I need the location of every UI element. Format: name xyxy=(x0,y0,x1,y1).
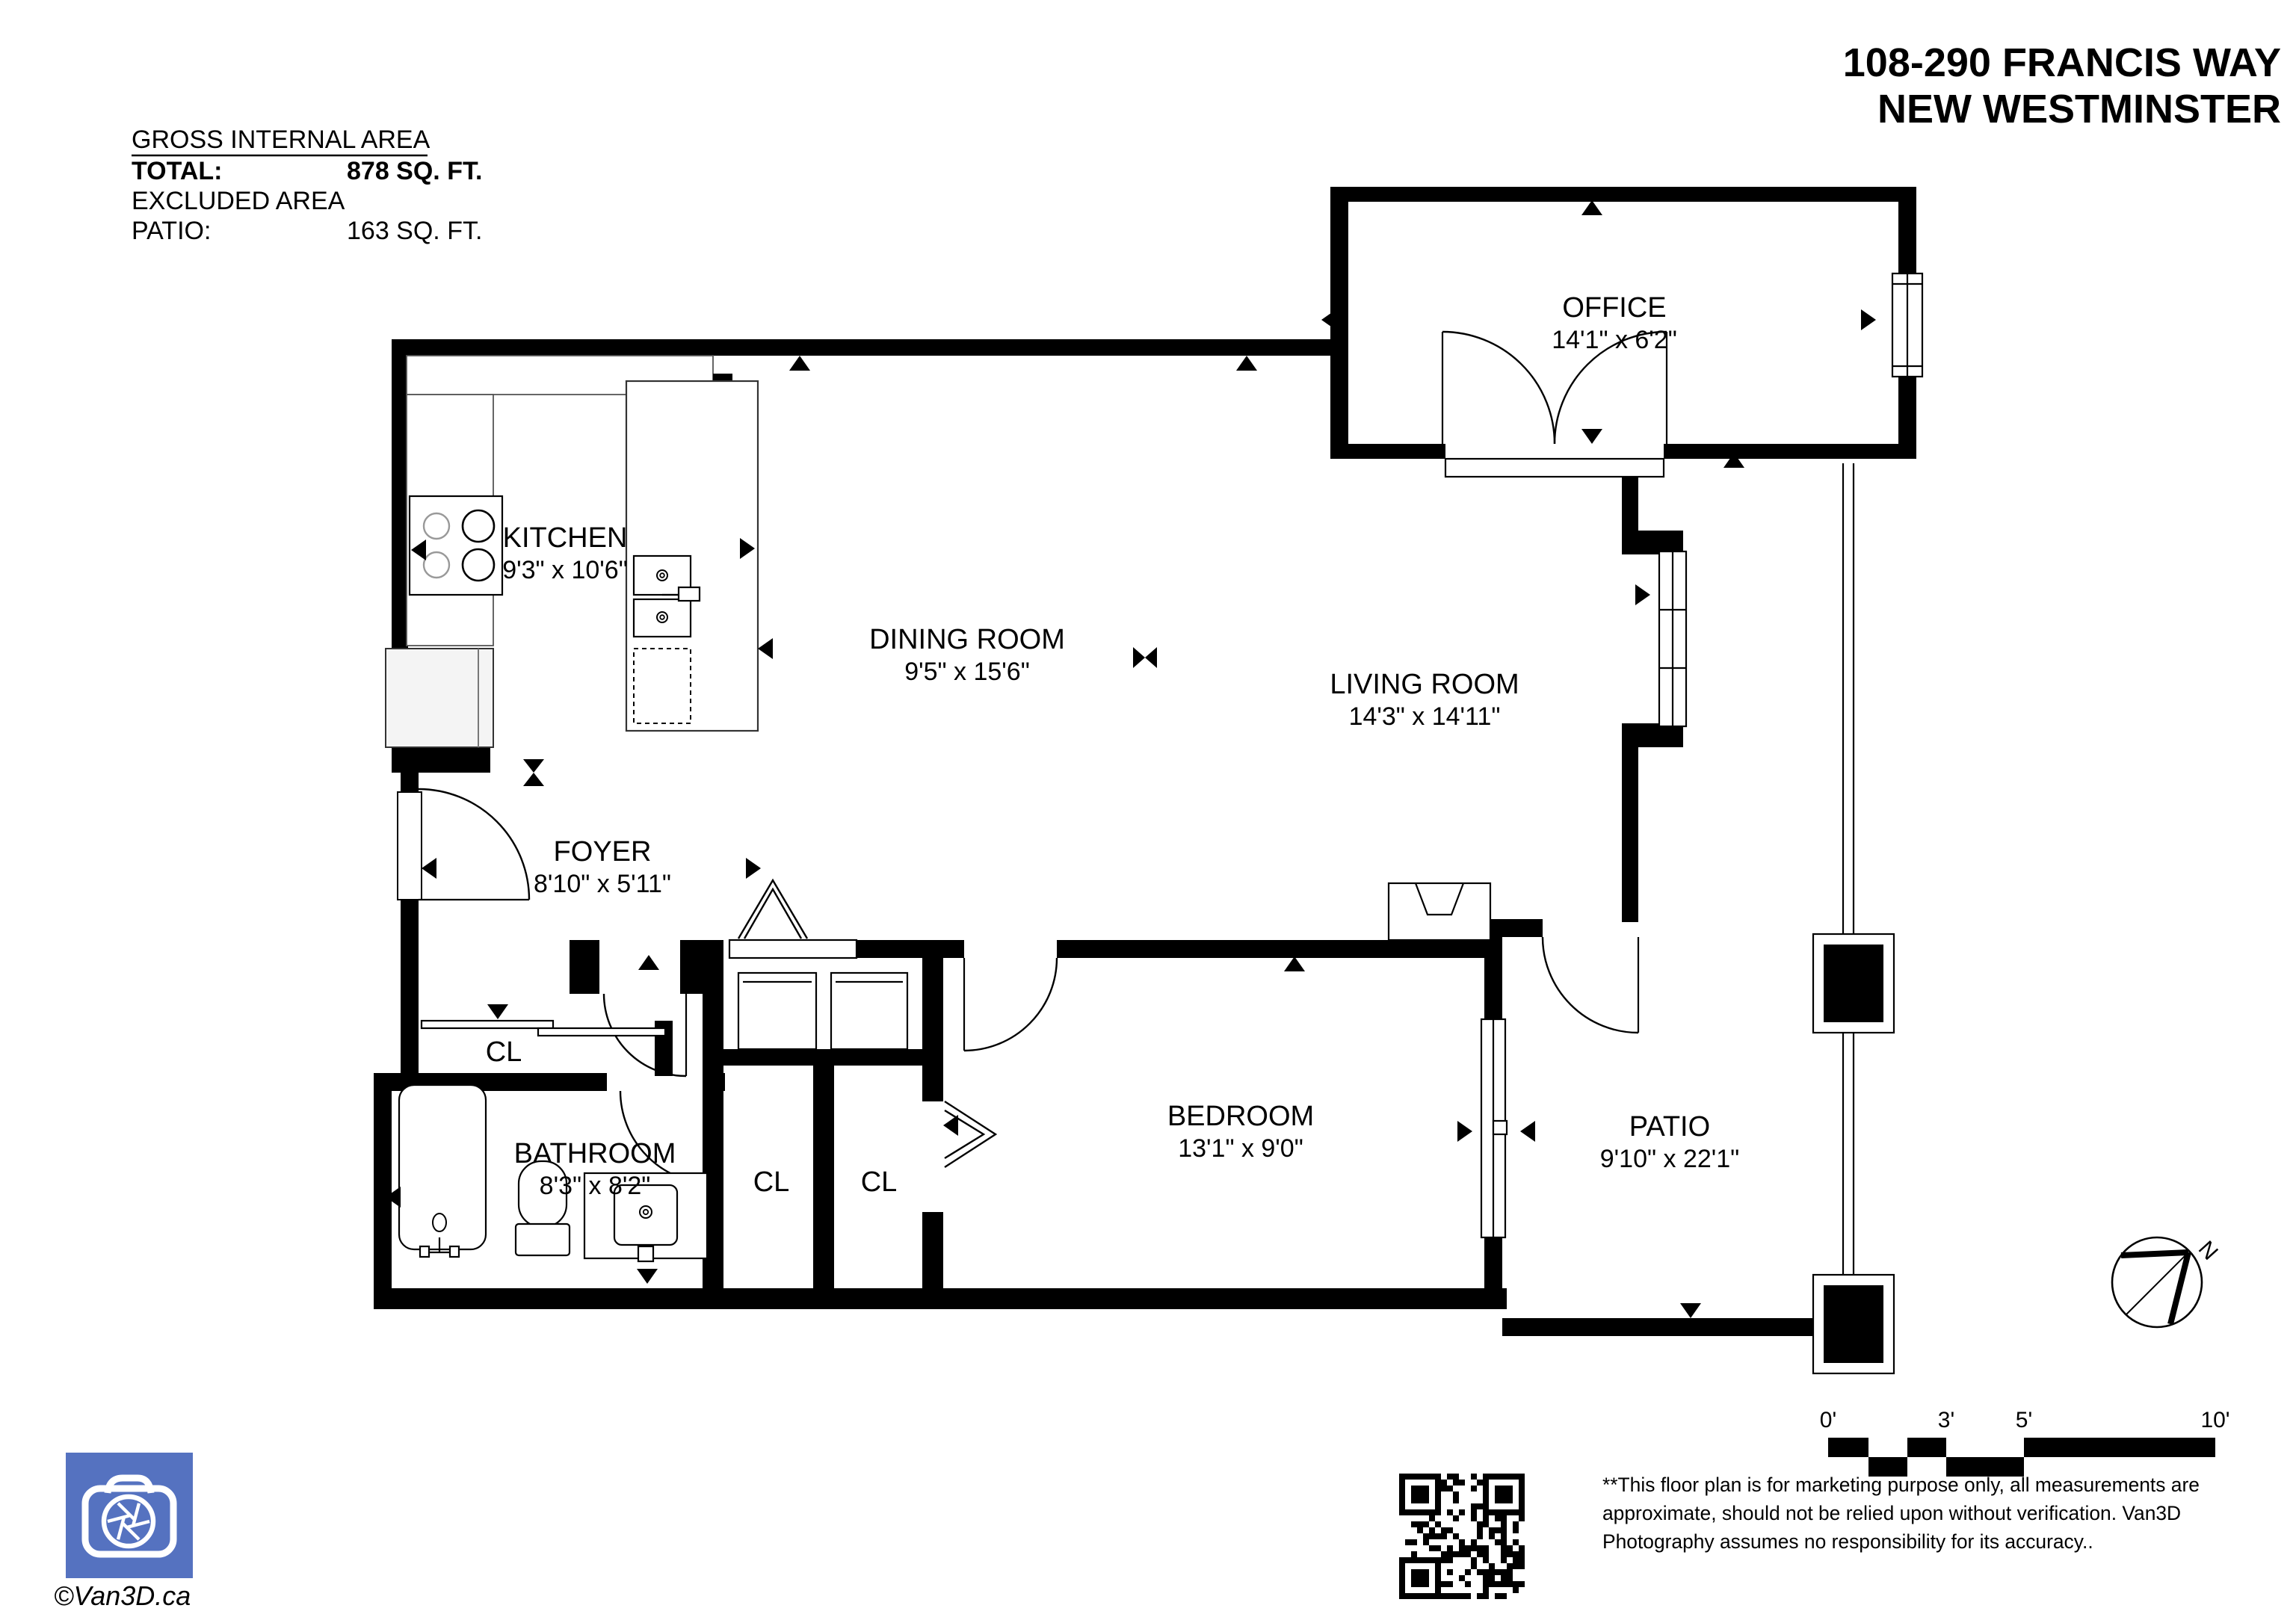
floor-plan-drawing: 108-290 FRANCIS WAY NEW WESTMINSTER GROS… xyxy=(0,0,2296,1623)
compass: N xyxy=(2112,1237,2223,1327)
patio-area-value: 163 SQ. FT. xyxy=(347,217,482,245)
total-label: TOTAL: xyxy=(132,157,223,185)
room-dims-bedroom: 13'1" x 9'0" xyxy=(1178,1134,1303,1163)
laundry-appliances xyxy=(738,973,907,1049)
patio-area-label: PATIO: xyxy=(132,217,211,245)
room-dims-dining: 9'5" x 15'6" xyxy=(904,658,1030,686)
sliding-door-icon xyxy=(422,1021,553,1028)
total-value: 878 SQ. FT. xyxy=(347,157,482,185)
floor-plan-page: 108-290 FRANCIS WAY NEW WESTMINSTER GROS… xyxy=(0,0,2296,1623)
room-dims-living: 14'3" x 14'11" xyxy=(1349,702,1501,731)
dryer xyxy=(831,973,907,1049)
scale-label-10: 10' xyxy=(2200,1408,2229,1432)
scale-label-3: 3' xyxy=(1938,1408,1954,1432)
scale-label-5: 5' xyxy=(2016,1408,2032,1432)
area-heading: GROSS INTERNAL AREA xyxy=(132,126,430,154)
scale-label-0: 0' xyxy=(1820,1408,1836,1432)
kitchen-peninsula xyxy=(626,381,758,731)
fireplace xyxy=(1389,883,1490,940)
washer xyxy=(738,973,816,1049)
office-door-sill xyxy=(1445,459,1664,477)
patio-railing xyxy=(1813,463,1894,1373)
room-label-closet-2: CL xyxy=(861,1166,898,1198)
room-label-foyer-closet: CL xyxy=(486,1036,522,1068)
bay-window xyxy=(1659,551,1686,726)
disclaimer: **This floor plan is for marketing purpo… xyxy=(1602,1474,2200,1553)
disclaimer-line1: **This floor plan is for marketing purpo… xyxy=(1602,1474,2200,1496)
title-line1: 108-290 FRANCIS WAY xyxy=(1843,40,2281,85)
room-label-bathroom: BATHROOM xyxy=(514,1138,676,1169)
laundry-door-band xyxy=(729,940,857,958)
credit-text: ©Van3D.ca xyxy=(54,1580,191,1611)
entry-door-frame xyxy=(398,792,422,900)
office-window xyxy=(1892,273,1922,377)
room-label-office: OFFICE xyxy=(1562,292,1666,324)
fridge xyxy=(386,649,493,747)
excluded-label: EXCLUDED AREA xyxy=(132,187,345,215)
room-label-bedroom: BEDROOM xyxy=(1167,1101,1314,1132)
patio-slider-door xyxy=(1481,1019,1507,1237)
room-dims-bathroom: 8'3" x 8'2" xyxy=(540,1172,651,1200)
qr-code xyxy=(1399,1474,1525,1599)
title-line2: NEW WESTMINSTER xyxy=(1877,87,2281,132)
area-summary: GROSS INTERNAL AREA TOTAL: 878 SQ. FT. E… xyxy=(132,126,482,245)
north-label: N xyxy=(2194,1237,2223,1265)
disclaimer-line3: Photography assumes no responsibility fo… xyxy=(1602,1530,2093,1553)
room-dims-patio: 9'10" x 22'1" xyxy=(1600,1145,1739,1173)
room-dims-kitchen: 9'3" x 10'6" xyxy=(502,556,628,584)
closet-bifold-icon xyxy=(945,1101,996,1167)
room-label-living: LIVING ROOM xyxy=(1330,669,1519,700)
patio-column xyxy=(1813,1275,1894,1373)
room-dims-foyer: 8'10" x 5'11" xyxy=(534,870,671,898)
disclaimer-line2: approximate, should not be relied upon w… xyxy=(1602,1502,2181,1524)
bathtub xyxy=(399,1085,486,1257)
patio-column xyxy=(1813,934,1894,1033)
room-label-kitchen: KITCHEN xyxy=(503,522,628,554)
page-title: 108-290 FRANCIS WAY NEW WESTMINSTER xyxy=(1843,40,2281,132)
room-label-patio: PATIO xyxy=(1629,1111,1710,1143)
room-label-closet-1: CL xyxy=(753,1166,790,1198)
room-dims-office: 14'1" x 6'2" xyxy=(1552,326,1677,354)
room-label-dining: DINING ROOM xyxy=(869,624,1065,655)
room-label-foyer: FOYER xyxy=(554,836,652,868)
van3d-logo: ©Van3D.ca xyxy=(54,1453,193,1611)
scale-bar: 0' 3' 5' 10' xyxy=(1820,1408,2230,1477)
